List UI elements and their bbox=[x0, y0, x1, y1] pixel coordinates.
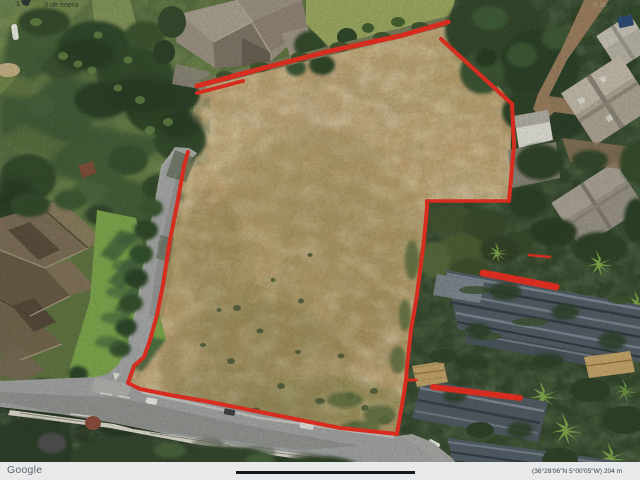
svg-text:1: 1 bbox=[16, 1, 20, 8]
svg-text:3 de enero: 3 de enero bbox=[44, 0, 78, 9]
svg-text:Google: Google bbox=[7, 465, 42, 476]
svg-text:© 26: © 26 bbox=[593, 1, 607, 9]
svg-text:(36°28'06"N 5°00'05"W) 204 m: (36°28'06"N 5°00'05"W) 204 m bbox=[532, 467, 623, 475]
